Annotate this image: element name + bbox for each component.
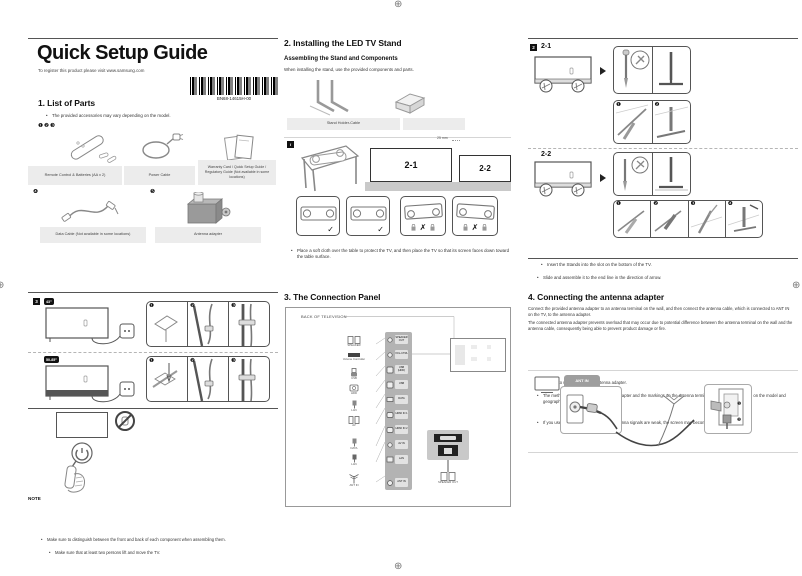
port-chip: USB bbox=[395, 380, 408, 389]
power-cable-illustration bbox=[130, 132, 190, 164]
remote-illustration bbox=[45, 132, 123, 164]
step-number: ❷ bbox=[190, 304, 195, 310]
inset-speakers: SPEAKER OUT bbox=[434, 472, 462, 484]
registration-mark-icon: ⊕ bbox=[394, 0, 402, 10]
step-number: ❶ bbox=[616, 202, 621, 208]
stand-steps-bullet: Slide and assemble it to the end line in… bbox=[536, 275, 799, 282]
variant-label: 2-2 bbox=[541, 151, 551, 158]
ant-in-tab: ANT IN bbox=[564, 375, 600, 386]
port-chip: AV IN bbox=[395, 440, 408, 449]
note-label: NOTE bbox=[28, 496, 41, 501]
tv-icon bbox=[534, 376, 560, 394]
port-row: ANT IN bbox=[386, 478, 411, 487]
step-number: ❹ bbox=[728, 202, 733, 208]
part-numbers: ❶❷❸ bbox=[38, 124, 56, 130]
port-glyph-icon bbox=[386, 352, 394, 358]
divider bbox=[528, 370, 798, 371]
part-label: Antenna adapter bbox=[155, 227, 261, 243]
registration-mark-icon: ⊕ bbox=[394, 562, 402, 572]
jack-data: DATA bbox=[334, 438, 374, 454]
rear-panel: SPEAKER OUT VOL-CTRL USB (HDD) USB DATA … bbox=[385, 332, 412, 490]
port-glyph-icon bbox=[386, 480, 394, 486]
stand-holder-label: Stand Holder-Cable bbox=[287, 118, 400, 130]
page-subtitle: To register this product please visit ww… bbox=[38, 68, 144, 73]
tv-power-illustration bbox=[44, 364, 140, 406]
port-glyph-icon bbox=[386, 411, 394, 419]
jack-volume-controller: Volume Controller bbox=[334, 352, 374, 368]
port-chip: VOL-CTRL bbox=[395, 350, 408, 359]
antenna-heading: 4. Connecting the antenna adapter bbox=[528, 292, 664, 302]
check-mark: ✓ bbox=[297, 225, 334, 234]
part-number: ❺ bbox=[150, 190, 155, 196]
step-number: ❸ bbox=[231, 304, 236, 310]
tv-back-illustration bbox=[532, 160, 594, 198]
step-number: ❶ bbox=[616, 103, 621, 109]
part-label: Warranty Card / Quick Setup Guide / Regu… bbox=[198, 160, 276, 185]
jack-lan-1: LAN bbox=[334, 400, 374, 416]
antenna-paragraph: Connect the provided antenna adapter to … bbox=[528, 306, 794, 318]
tv-2-1: 2-1 bbox=[370, 148, 452, 182]
stand-label-blank bbox=[403, 118, 465, 130]
stand-heading: 2. Installing the LED TV Stand bbox=[284, 38, 401, 48]
jack-av: AV bbox=[334, 416, 374, 432]
divider bbox=[28, 408, 278, 409]
hand-remote-illustration bbox=[60, 440, 104, 494]
port-glyph-icon bbox=[386, 456, 394, 463]
note-bullet: Make sure that at least two persons lift… bbox=[48, 550, 283, 556]
port-chip: USB (HDD) bbox=[395, 365, 408, 374]
jack-speaker: SPEAKER bbox=[334, 336, 374, 352]
port-glyph-icon bbox=[386, 442, 394, 448]
jack-ant-in: ANT IN bbox=[334, 474, 374, 490]
ant-in-panel bbox=[560, 386, 622, 434]
step-number: ❸ bbox=[691, 202, 696, 208]
stand-legs-illustration bbox=[300, 78, 364, 116]
port-row: LAN bbox=[386, 455, 411, 464]
step-number: ❶ bbox=[737, 401, 741, 407]
size-badge: 50-85″ bbox=[44, 356, 59, 363]
step-number: ❸ bbox=[231, 359, 236, 365]
tv-2-2: 2-2 bbox=[459, 155, 511, 182]
tv-back-illustration bbox=[532, 54, 594, 94]
port-glyph-icon bbox=[386, 337, 394, 343]
registration-mark-icon: ⊕ bbox=[792, 281, 800, 291]
port-row: SPEAKER OUT bbox=[386, 335, 411, 344]
orientation-panel-ok: ✓ bbox=[346, 196, 390, 236]
divider bbox=[528, 258, 798, 259]
stand-intro: When installing the stand, use the provi… bbox=[284, 67, 504, 74]
table-illustration bbox=[296, 142, 362, 192]
tv-front-illustration bbox=[56, 412, 108, 438]
step-number: ❶ bbox=[149, 304, 154, 310]
antenna-adapter-illustration bbox=[170, 192, 240, 226]
connection-heading: 3. The Connection Panel bbox=[284, 292, 380, 302]
stand-holder-illustration bbox=[390, 86, 430, 114]
arrow-right-icon bbox=[600, 67, 606, 75]
cable-step-panel: ❶ ❷ ❸ bbox=[146, 301, 270, 347]
section-number-badge: 2 bbox=[530, 44, 537, 51]
stand-subheading: Assembling the Stand and Components bbox=[284, 56, 398, 62]
divider bbox=[28, 292, 278, 293]
part-label: Power Cable bbox=[124, 166, 195, 185]
info-icon: i bbox=[287, 141, 294, 148]
cable-step-panel: ❶ ❷ ❸ bbox=[146, 356, 270, 402]
divider bbox=[528, 452, 798, 453]
stand-step-panel: ❶ ❷ bbox=[613, 100, 691, 144]
floor bbox=[365, 182, 511, 191]
stand-detail-panel bbox=[613, 46, 691, 94]
parts-bullet: The provided accessories may vary depend… bbox=[45, 113, 272, 120]
port-chip: ANT IN bbox=[395, 478, 408, 487]
variant-label: 2-1 bbox=[541, 43, 551, 50]
divider bbox=[284, 137, 511, 138]
step-number: ❷ bbox=[655, 103, 660, 109]
port-chip: DATA bbox=[395, 395, 408, 404]
port-row: USB bbox=[386, 380, 411, 389]
gap-dimension: 25 mm bbox=[437, 136, 448, 140]
port-glyph-icon bbox=[386, 426, 394, 434]
cross-mark: ✗ bbox=[420, 223, 427, 232]
speaker-out-inset bbox=[427, 430, 469, 460]
port-row: HDMI IN 1 bbox=[386, 410, 411, 419]
part-label: Remote Control & Batteries (AA x 2) bbox=[28, 166, 122, 185]
wall-terminal-panel: ❶ ❷ bbox=[704, 384, 752, 434]
parts-heading: 1. List of Parts bbox=[38, 98, 95, 108]
port-glyph-icon bbox=[386, 381, 394, 389]
arrow-right-icon bbox=[600, 174, 606, 182]
jack-lan-2: LAN bbox=[334, 454, 374, 470]
port-row: AV IN bbox=[386, 440, 411, 449]
lock-icon bbox=[482, 224, 487, 231]
barcode-label: BN68-14615H-00 bbox=[190, 96, 278, 101]
divider bbox=[28, 352, 278, 353]
divider bbox=[528, 148, 798, 149]
part-number: ❹ bbox=[33, 190, 38, 196]
divider bbox=[28, 38, 278, 39]
port-row: VOL-CTRL bbox=[386, 350, 411, 359]
stand-bullet: Place a soft cloth over the table to pro… bbox=[290, 248, 515, 261]
note-bullet: Make sure to distinguish between the fro… bbox=[40, 537, 283, 543]
divider bbox=[528, 38, 798, 39]
check-mark: ✓ bbox=[347, 225, 384, 234]
port-glyph-icon bbox=[386, 397, 394, 402]
port-chip: LAN bbox=[395, 455, 408, 464]
inset-connector-line bbox=[446, 460, 450, 472]
port-glyph-icon bbox=[386, 366, 394, 374]
section-number-badge: 3 bbox=[33, 298, 40, 305]
step-number: ❷ bbox=[737, 417, 741, 423]
port-chip: SPEAKER OUT bbox=[395, 335, 408, 344]
data-cable-illustration bbox=[60, 196, 130, 226]
cross-mark: ✗ bbox=[472, 223, 479, 232]
quick-setup-guide-page: ⊕ ⊕ ⊕ ⊕ Quick Setup Guide To register th… bbox=[0, 0, 802, 576]
stand-detail-panel bbox=[613, 152, 691, 196]
lock-icon bbox=[463, 224, 468, 231]
orientation-panel-bad: ✗ bbox=[452, 196, 498, 236]
stand-step-panel: ❶ ❷ ❸ ❹ bbox=[613, 200, 763, 238]
registration-mark-icon: ⊕ bbox=[0, 281, 4, 291]
barcode bbox=[190, 77, 278, 95]
step-number: ❷ bbox=[653, 202, 658, 208]
dimension-line bbox=[452, 140, 460, 141]
lock-icon bbox=[411, 224, 416, 231]
stand-steps-bullet: Insert the Stands into the slot on the b… bbox=[540, 262, 802, 269]
side-ports-callout bbox=[450, 338, 506, 372]
tv-power-illustration bbox=[44, 306, 140, 348]
antenna-paragraph: The connected antenna adapter prevents o… bbox=[528, 320, 794, 332]
part-label: Data Cable (Not available in some locati… bbox=[40, 227, 146, 243]
port-row: DATA bbox=[386, 395, 411, 404]
jack-list: SPEAKER Volume Controller USB HDD LAN AV bbox=[334, 336, 374, 490]
port-row: USB (HDD) bbox=[386, 365, 411, 374]
no-touch-icon bbox=[114, 410, 136, 432]
port-chip: HDMI IN 2 bbox=[395, 425, 408, 434]
port-chip: HDMI IN 1 bbox=[395, 410, 408, 419]
page-title: Quick Setup Guide bbox=[37, 42, 207, 65]
connection-diagram-box: BACK OF TELEVISION SPEAKER Volume Contro bbox=[285, 307, 511, 507]
orientation-panel-ok: ✓ bbox=[296, 196, 340, 236]
inset-label: SPEAKER OUT bbox=[434, 481, 462, 484]
size-badge: 43″ bbox=[44, 298, 54, 305]
step-number: ❷ bbox=[190, 359, 195, 365]
orientation-panel-bad: ✗ bbox=[400, 196, 446, 236]
lock-icon bbox=[430, 224, 435, 231]
step-number: ❶ bbox=[149, 359, 154, 365]
jack-hdd: HDD bbox=[334, 384, 374, 400]
jack-usb: USB bbox=[334, 368, 374, 384]
port-row: HDMI IN 2 bbox=[386, 425, 411, 434]
